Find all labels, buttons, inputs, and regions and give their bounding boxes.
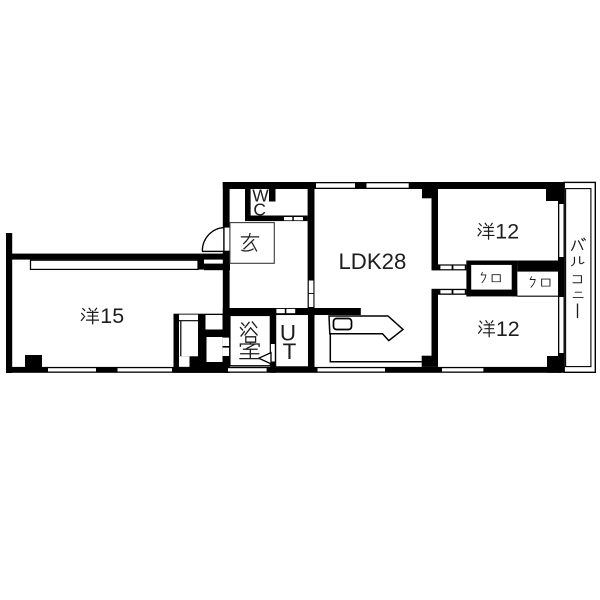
svg-text:C: C: [253, 200, 266, 220]
svg-text:T: T: [283, 339, 297, 364]
svg-text:12: 12: [495, 220, 519, 244]
svg-text:LDK28: LDK28: [338, 249, 406, 274]
svg-text:15: 15: [100, 304, 124, 328]
svg-text:12: 12: [496, 317, 520, 341]
